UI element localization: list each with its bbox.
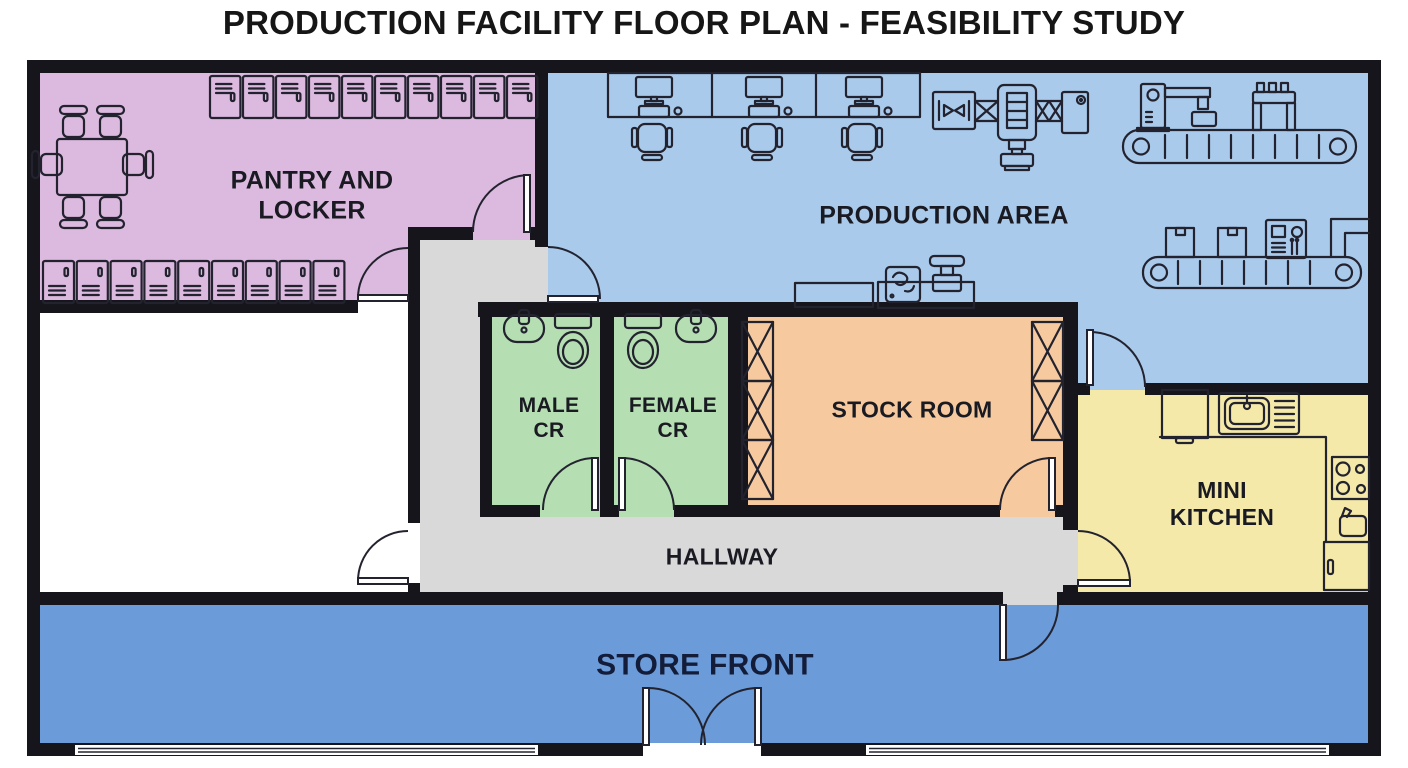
room-unlabeled bbox=[40, 300, 420, 592]
room-label-pantry-locker: PANTRY AND LOCKER bbox=[231, 167, 394, 226]
room-label-stock-room: STOCK ROOM bbox=[831, 396, 992, 423]
room-label-female-cr: FEMALE CR bbox=[629, 394, 717, 444]
room-label-male-cr: MALE CR bbox=[519, 394, 580, 444]
room-label-store-front: STORE FRONT bbox=[596, 647, 814, 682]
room-label-production: PRODUCTION AREA bbox=[819, 201, 1068, 231]
floor-plan-page: PRODUCTION FACILITY FLOOR PLAN - FEASIBI… bbox=[0, 0, 1408, 768]
room-label-mini-kitchen: MINI KITCHEN bbox=[1170, 477, 1274, 531]
room-label-hallway: HALLWAY bbox=[666, 543, 778, 570]
